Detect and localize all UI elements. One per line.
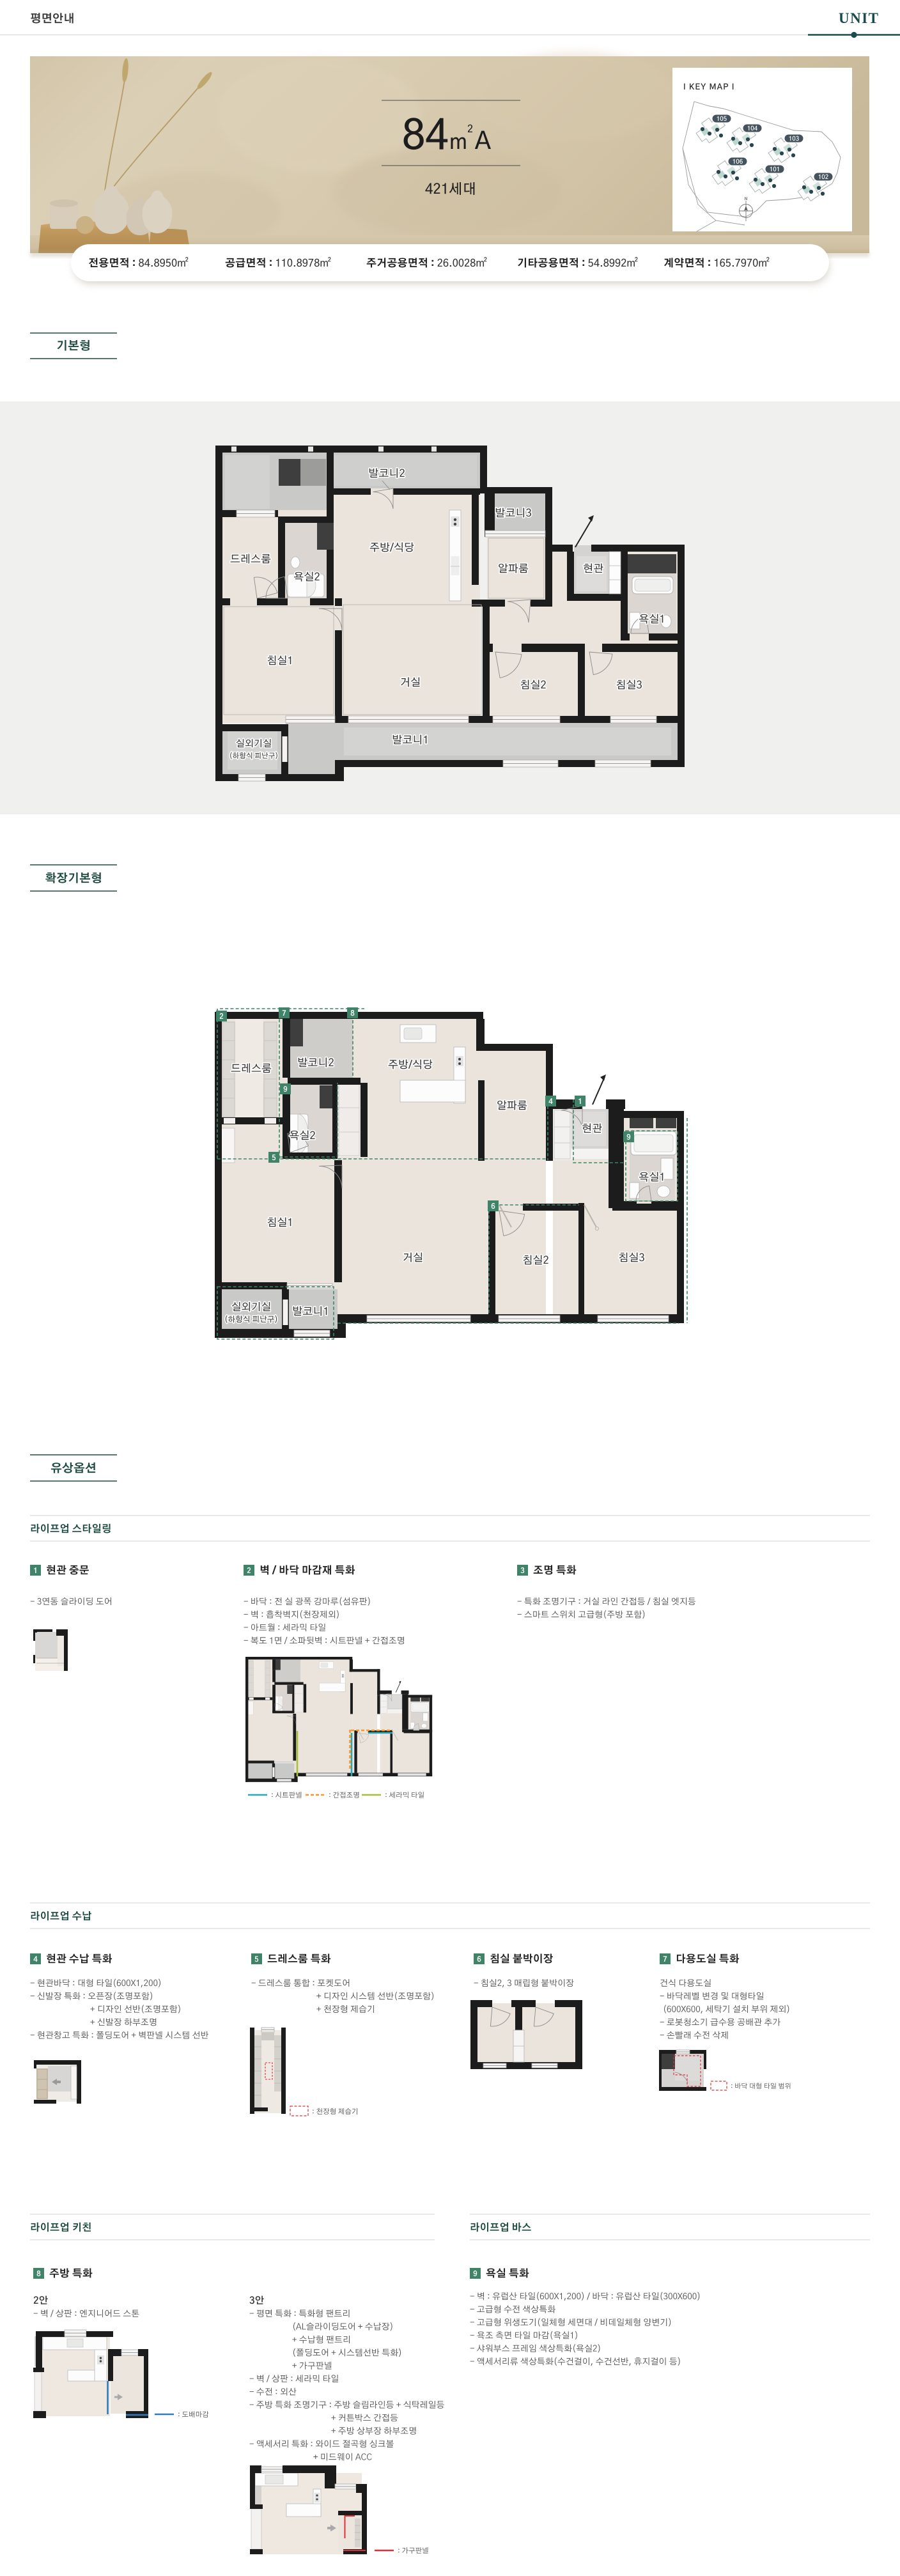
svg-text:UNIT: UNIT — [839, 10, 880, 26]
